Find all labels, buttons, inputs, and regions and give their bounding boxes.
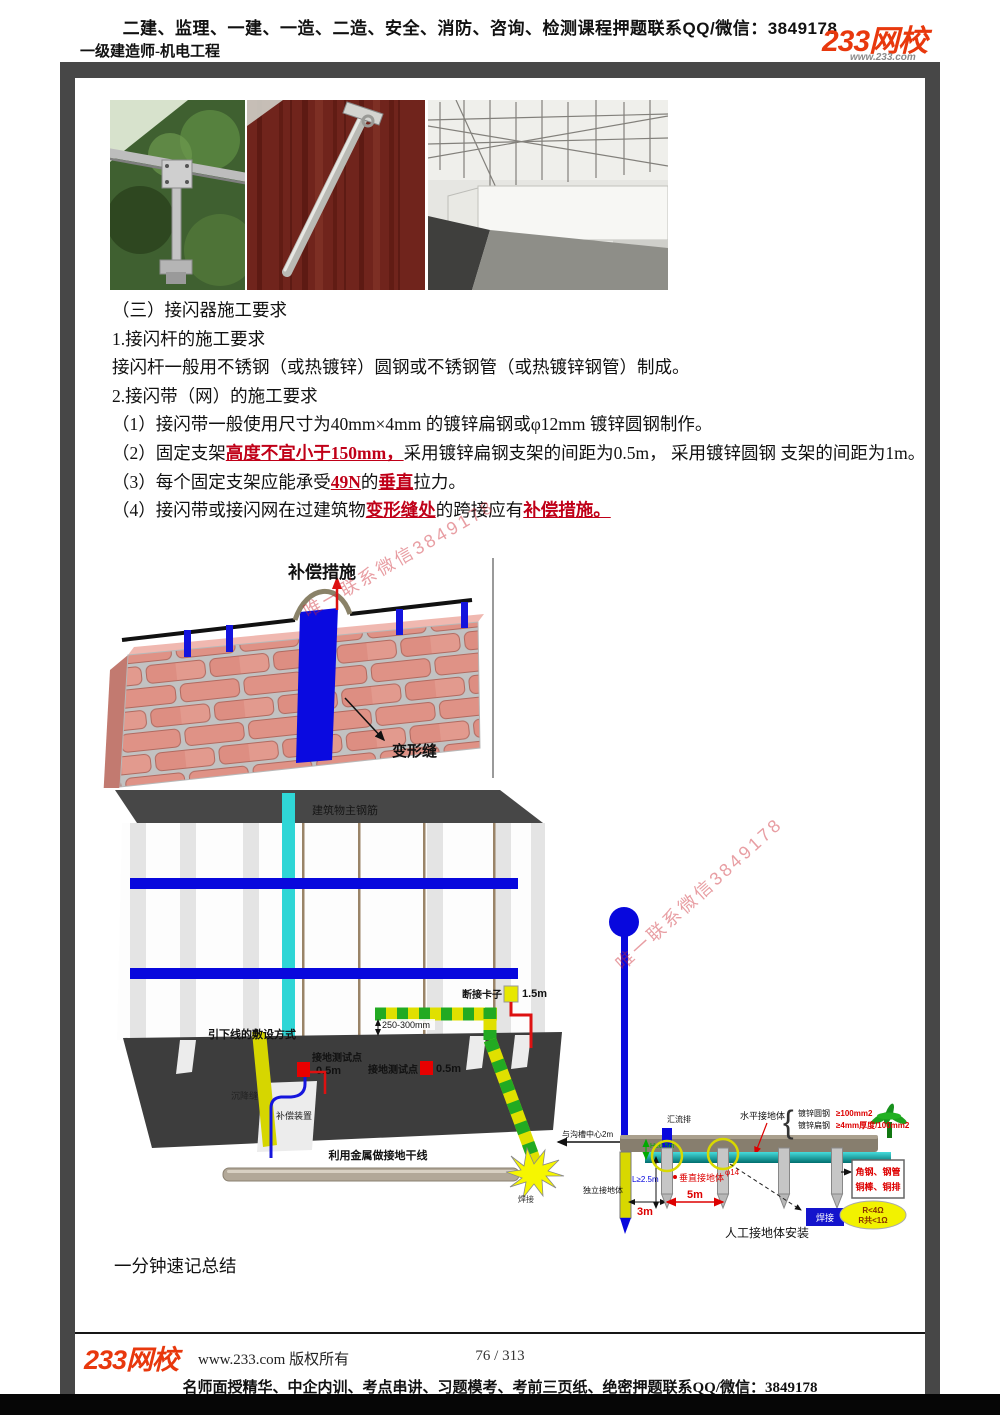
label-weld-2: 焊接 bbox=[816, 1212, 834, 1223]
label-vertical-body: 垂直接地体 bbox=[679, 1172, 724, 1183]
para-belt-size: （1）接闪带一般使用尺寸为40mm×4mm 的镀锌扁钢或φ12mm 镀锌圆钢制作… bbox=[80, 410, 928, 439]
support-post bbox=[226, 625, 233, 652]
footer-copyright: www.233.com 版权所有 bbox=[198, 1348, 349, 1369]
summary-heading: 一分钟速记总结 bbox=[114, 1253, 237, 1278]
deformation-joint-strip bbox=[296, 608, 338, 763]
footer-logo: 233网校 bbox=[84, 1338, 178, 1377]
support-post bbox=[461, 602, 468, 628]
label-test-point-1: 接地测试点 bbox=[312, 1051, 362, 1064]
header-promo-line: 二建、监理、一建、一造、二造、安全、消防、咨询、检测课程押题联系QQ/微信：38… bbox=[80, 14, 880, 39]
figure-brick-wall-compensation: 补偿措施 变形缝 bbox=[100, 558, 500, 788]
value-test-point-2: 0.5m bbox=[436, 1063, 461, 1075]
highlight-150mm: 高度不宜小于150mm， bbox=[226, 443, 404, 463]
dim-3m: 3m bbox=[637, 1206, 653, 1218]
page-number: 76 / 313 bbox=[400, 1348, 600, 1365]
para-bracket-force: （3）每个固定支架应能承受49N的垂直拉力。 bbox=[80, 468, 928, 497]
label-weld-1: 焊接 bbox=[518, 1194, 534, 1204]
label-compensation-device: 补偿装置 bbox=[276, 1110, 312, 1121]
label-settlement-joint: 沉降缝 bbox=[231, 1090, 258, 1101]
lesson-text: （三）接闪器施工要求 1.接闪杆的施工要求 接闪杆一般用不锈钢（或热镀锌）圆钢或… bbox=[80, 296, 928, 525]
ground-test-point-marker bbox=[297, 1062, 310, 1077]
label-independent-body: 独立接地体 bbox=[583, 1185, 623, 1195]
figure-divider-line bbox=[492, 558, 494, 778]
label-manual-install: 人工接地体安装 bbox=[725, 1225, 809, 1240]
label-main-rebar: 建筑物主钢筋 bbox=[312, 803, 378, 817]
label-disconnect-clamp: 断接卡子 bbox=[462, 988, 502, 1001]
independent-electrode bbox=[620, 1152, 631, 1218]
header-course-title: 一级建造师-机电工程 bbox=[80, 40, 220, 61]
value-disconnect-clamp: 1.5m bbox=[522, 988, 547, 1000]
label-compensation: 补偿措施 bbox=[287, 562, 356, 582]
frame-left-bar bbox=[60, 62, 75, 1394]
heading-item-2: 2.接闪带（网）的施工要求 bbox=[80, 382, 928, 411]
dim-trench-2m: 与沟槽中心2m bbox=[562, 1129, 613, 1139]
photo-construction-site bbox=[428, 100, 668, 290]
highlight-joint: 变形缝处 bbox=[366, 500, 436, 520]
label-joint: 变形缝 bbox=[392, 742, 437, 760]
spec-flat-steel: 镀锌扁钢 bbox=[798, 1120, 830, 1130]
spec-round-steel: 镀锌圆钢 bbox=[798, 1108, 830, 1118]
floor-band bbox=[130, 968, 518, 979]
svg-text:{: { bbox=[783, 1104, 794, 1140]
lightning-mast bbox=[621, 930, 628, 1142]
figure-grounding-system: 建筑物主钢筋 沉降缝 补偿装置 引下线的敷设方式 接地测试点 0.5m 接地测试… bbox=[75, 788, 940, 1265]
support-post bbox=[184, 630, 191, 657]
floor-band bbox=[130, 878, 518, 889]
para-rod-material: 接闪杆一般用不锈钢（或热镀锌）圆钢或不锈钢管（或热镀锌钢管）制成。 bbox=[80, 353, 928, 382]
dim-length: L≥2.5m bbox=[632, 1175, 659, 1184]
disconnect-clamp-marker bbox=[504, 986, 518, 1002]
frame-top-bar bbox=[75, 62, 940, 78]
photo-rod-clamp-on-railing bbox=[110, 100, 245, 290]
resistance-line-2: R共<1Ω bbox=[858, 1215, 888, 1225]
para-bracket-height: （2）固定支架高度不宜小于150mm，采用镀锌扁钢支架的间距为0.5m， 采用镀… bbox=[80, 439, 928, 468]
label-test-point-2: 接地测试点 bbox=[368, 1063, 418, 1076]
highlight-vertical: 垂直 bbox=[378, 472, 413, 492]
footer-rule bbox=[75, 1332, 925, 1334]
para-deformation-joint: （4）接闪带或接闪网在过建筑物变形缝处的跨接应有补偿措施。 bbox=[80, 496, 928, 525]
resistance-line-1: R<4Ω bbox=[862, 1206, 884, 1215]
support-post bbox=[396, 609, 403, 635]
down-conductor-strip bbox=[282, 793, 295, 1038]
spec-flat-value: ≥4mm厚度/100mm2 bbox=[836, 1120, 910, 1130]
photo-anchor-bolt-on-wood bbox=[247, 100, 425, 290]
label-horizontal-body: 水平接地体 bbox=[740, 1110, 785, 1121]
heading-section-3: （三）接闪器施工要求 bbox=[80, 296, 928, 325]
materials-box bbox=[852, 1160, 904, 1198]
bottom-black-bar bbox=[0, 1394, 1000, 1415]
grounding-trunk-pipe bbox=[223, 1168, 519, 1181]
document-page: 二建、监理、一建、一造、二造、安全、消防、咨询、检测课程押题联系QQ/微信：38… bbox=[0, 0, 1000, 1415]
highlight-49n: 49N bbox=[331, 472, 361, 492]
label-downlead-method: 引下线的敷设方式 bbox=[208, 1027, 296, 1041]
label-metal-trunk: 利用金属做接地干线 bbox=[329, 1148, 428, 1162]
highlight-compensation: 补偿措施。 bbox=[523, 500, 611, 520]
materials-line-2: 铜棒、铜排 bbox=[855, 1181, 900, 1192]
materials-line-1: 角钢、钢管 bbox=[855, 1166, 900, 1177]
label-busbar: 汇流排 bbox=[667, 1114, 691, 1124]
ground-test-point-marker bbox=[420, 1061, 433, 1075]
dim-250-300: 250-300mm bbox=[382, 1020, 430, 1030]
heading-item-1: 1.接闪杆的施工要求 bbox=[80, 325, 928, 354]
dim-5m: 5m bbox=[687, 1189, 703, 1201]
spec-round-value: ≥100mm2 bbox=[836, 1109, 873, 1118]
